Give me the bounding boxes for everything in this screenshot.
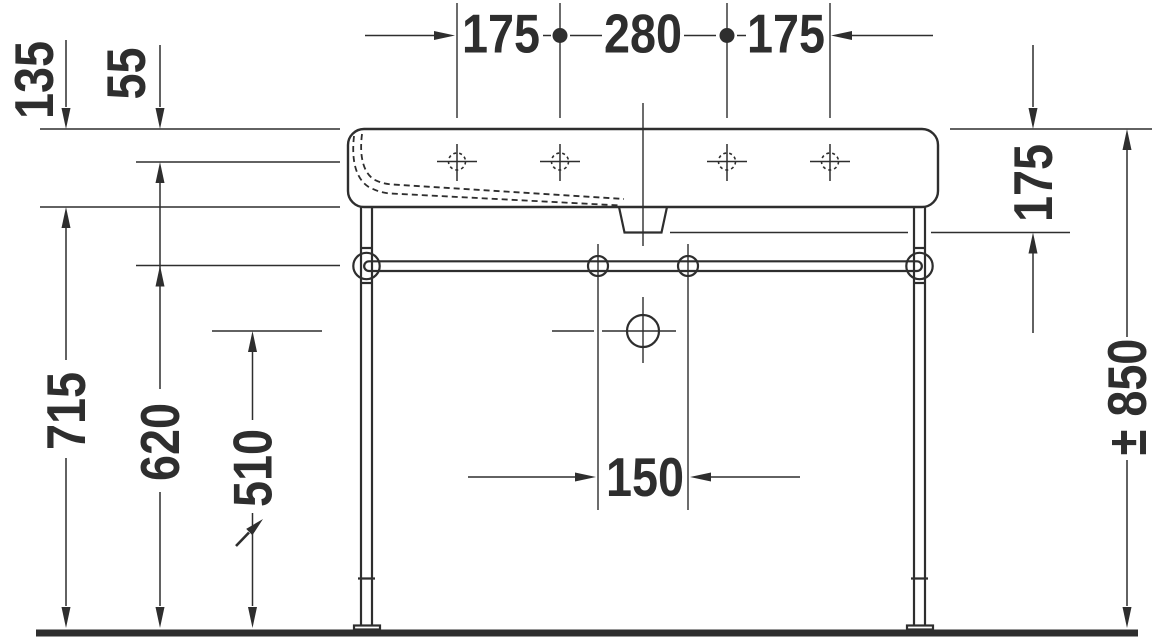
- arrow-down-icon: [156, 108, 165, 129]
- floor-line: [36, 630, 1138, 637]
- left-extension-lines: [40, 129, 340, 331]
- dim-label-top-left: 175: [462, 3, 540, 64]
- dim-label-620: 620: [129, 403, 190, 481]
- dim-label-850: ± 850: [1096, 339, 1157, 456]
- basin-wall-dashed-line: [361, 134, 624, 199]
- dimension-left-510: 510: [222, 331, 283, 628]
- faucet-hole: [810, 144, 850, 181]
- arrow-left-icon: [690, 473, 711, 482]
- arrow-down-icon: [248, 607, 257, 628]
- towel-rail: [353, 253, 932, 279]
- technical-drawing-page: 175 280 175 135 715 55 620 5: [0, 0, 1167, 642]
- arrow-down-icon: [1123, 607, 1132, 628]
- dim-label-right-175: 175: [1002, 144, 1063, 222]
- dimension-left-135-715: 135 715: [3, 40, 96, 628]
- dimension-top: 175 280 175: [365, 3, 933, 118]
- dimension-dot: [553, 28, 568, 43]
- basin-floor-dashed-line: [353, 136, 621, 206]
- dim-label-top-center: 280: [604, 3, 682, 64]
- arrow-left-icon: [831, 31, 852, 40]
- arrow-up-icon: [1123, 129, 1132, 150]
- right-extension-lines: [670, 129, 1152, 233]
- dim-label-55: 55: [95, 48, 156, 100]
- dimension-right-850: ± 850: [1096, 129, 1157, 628]
- arrow-right-icon: [434, 31, 455, 40]
- faucet-hole: [707, 144, 747, 181]
- arrow-right-icon: [575, 473, 596, 482]
- dim-label-150: 150: [606, 446, 684, 507]
- arrow-up-icon: [248, 331, 257, 352]
- dimension-bottom-150: 150: [468, 244, 800, 510]
- dim-label-135: 135: [3, 41, 64, 119]
- arrow-down-icon: [62, 607, 71, 628]
- dim-label-top-right: 175: [747, 3, 825, 64]
- basin-inner-profile-dashes: [353, 134, 624, 206]
- arrow-down-icon: [156, 607, 165, 628]
- arrow-down-icon: [1029, 108, 1038, 129]
- left-rail-joint: [353, 253, 379, 279]
- faucet-hole: [540, 144, 580, 181]
- arrow-up-icon: [156, 266, 165, 287]
- dimension-dot: [720, 28, 735, 43]
- right-foot-base: [907, 626, 933, 630]
- faucet-hole: [437, 144, 477, 181]
- dim-label-715: 715: [35, 372, 96, 450]
- arrow-up-icon: [1029, 233, 1038, 254]
- dimension-right-175: 175: [1002, 45, 1063, 333]
- right-rail-joint: [906, 253, 932, 279]
- dim-label-510: 510: [222, 429, 283, 507]
- arrow-up-icon: [156, 162, 165, 183]
- arrow-up-icon: [62, 207, 71, 228]
- washbasin-dimension-drawing: 175 280 175 135 715 55 620 5: [0, 0, 1167, 642]
- dimension-left-55-620: 55 620: [95, 45, 190, 628]
- left-foot-base: [354, 626, 380, 630]
